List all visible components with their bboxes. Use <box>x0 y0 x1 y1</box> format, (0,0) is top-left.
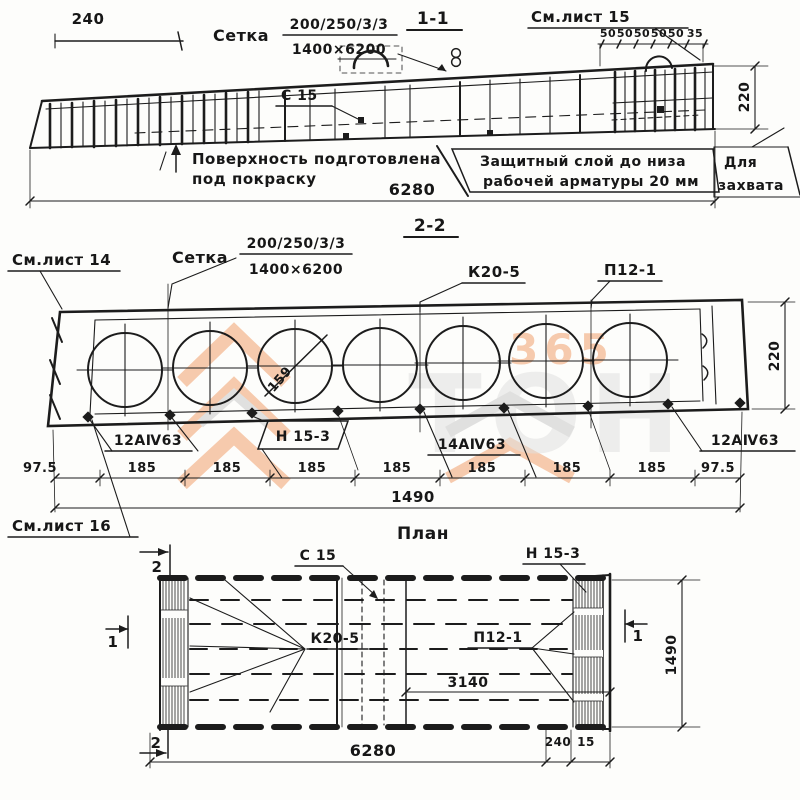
mesh-spec-bottom-2: 1400×6200 <box>249 262 343 278</box>
dim-185-6: 185 <box>553 461 582 476</box>
n15-3-text-plan: Н 15-3 <box>526 546 581 562</box>
section-marker-1-right: 1 <box>625 610 647 645</box>
dim-1490-plan-text: 1490 <box>664 635 680 676</box>
bar-left-text: 12АⅣ63 <box>114 433 182 449</box>
plan-outline <box>160 574 610 731</box>
dim-1490-s22: 1490 <box>51 488 744 512</box>
bar-mid-text: 14АⅣ63 <box>438 437 506 453</box>
dim-97-5-right: 97.5 <box>701 461 735 476</box>
grip-note: Для захвата <box>714 128 800 197</box>
dim-50-5: 50 <box>668 27 684 40</box>
dim-240-plan-text: 240 <box>545 735 572 749</box>
dim-220-s11: 220 <box>713 62 768 133</box>
k20-5-text-plan: К20-5 <box>311 631 360 647</box>
dim-6280-plan-text: 6280 <box>350 741 397 760</box>
dim-240-top: 240 <box>72 10 105 28</box>
dim-6280-s11-text: 6280 <box>389 180 436 199</box>
dims-50-row: 50 50 50 50 50 35 <box>598 27 708 66</box>
mesh-spec-top-1: 200/250/3/3 <box>290 17 389 33</box>
dim-97-5-left: 97.5 <box>23 461 57 476</box>
cover-note: Защитный слой до низа рабочей арматуры 2… <box>437 146 719 196</box>
dim-35: 35 <box>687 27 703 40</box>
dim-185-2: 185 <box>213 461 242 476</box>
dim-bottom-row: 240 15 6280 <box>146 730 614 768</box>
watermark: 365 ТОН <box>182 325 688 484</box>
hatch-strip-left <box>161 578 188 727</box>
dim-1490-s22-text: 1490 <box>391 488 435 506</box>
dim-15-plan-text: 15 <box>577 735 595 749</box>
bar-label-right: 12АⅣ63 <box>672 407 795 451</box>
section-marker-2-bottom: 2 <box>140 727 168 758</box>
dim-50-3: 50 <box>634 27 650 40</box>
see-sheet-16-text: См.лист 16 <box>12 517 111 535</box>
marker-1-right-text: 1 <box>633 627 644 645</box>
cover-note-line1: Защитный слой до низа <box>480 154 686 170</box>
dim-1490-plan: 1490 <box>612 576 700 731</box>
blueprint-page: 365 ТОН 1-1 См.лист 15 240 Сетка 200/250… <box>0 0 800 800</box>
mesh-spec-top-2: 200/250/3/3 <box>247 236 346 252</box>
dim-50-1: 50 <box>600 27 616 40</box>
grip-line1: Для <box>724 155 757 171</box>
section-1-1: 1-1 См.лист 15 240 Сетка 200/250/3/3 140… <box>26 8 800 208</box>
cover-note-line2: рабочей арматуры 20 мм <box>483 174 699 190</box>
c15-text-plan: С 15 <box>300 548 337 564</box>
lifting-hook-right <box>646 56 672 71</box>
c15-text-s11: С 15 <box>281 88 318 104</box>
see-sheet-15-label: См.лист 15 <box>531 8 630 26</box>
slab-longitudinal-section <box>30 46 715 148</box>
surface-note-line1: Поверхность подготовлена <box>192 150 441 168</box>
k20-5-label-plan: К20-5 <box>190 580 368 712</box>
section-1-1-title: 1-1 <box>417 9 449 29</box>
n15-3-label-plan: Н 15-3 <box>523 546 586 592</box>
hatch-strip-right <box>573 578 603 727</box>
dim-185-3: 185 <box>298 461 327 476</box>
mesh-word-1: Сетка <box>213 26 269 45</box>
plan-title: План <box>397 524 449 544</box>
dim-185-7: 185 <box>638 461 667 476</box>
drawing-canvas: 365 ТОН 1-1 См.лист 15 240 Сетка 200/250… <box>0 0 800 800</box>
plan-view: План С 15 Н 15-3 <box>106 524 700 768</box>
p12-1-text-s22: П12-1 <box>604 261 657 279</box>
surface-note-line2: под покраску <box>192 170 317 188</box>
dim-185-5: 185 <box>468 461 497 476</box>
section-marker-2-top: 2 <box>140 545 170 576</box>
n15-3-text-s22: Н 15-3 <box>276 429 331 445</box>
bar-right-text: 12АⅣ63 <box>711 433 779 449</box>
marker-2-bottom-text: 2 <box>151 734 162 752</box>
marker-1-left-text: 1 <box>108 633 119 651</box>
dim-3140-text: 3140 <box>448 675 489 691</box>
marker-2-top-text: 2 <box>152 558 163 576</box>
see-sheet-14-label: См.лист 14 <box>12 251 111 269</box>
plan-dashed-bars <box>190 600 572 700</box>
dim-185-1: 185 <box>128 461 157 476</box>
dim-220-s22-text: 220 <box>767 341 783 372</box>
section-2-2-title: 2-2 <box>414 216 446 236</box>
dim-220-s11-text: 220 <box>737 82 753 113</box>
rebar-right-zone <box>612 68 712 132</box>
section-marker-1-left: 1 <box>106 616 128 651</box>
dim-50-4: 50 <box>651 27 667 40</box>
dim-185-4: 185 <box>383 461 412 476</box>
p12-1-text-plan: П12-1 <box>473 630 522 646</box>
dim-50-2: 50 <box>617 27 633 40</box>
dim-220-s22: 220 <box>748 298 795 413</box>
grip-line2: захвата <box>718 178 784 194</box>
hook-symbol <box>452 49 461 67</box>
mesh-label-2: Сетка 200/250/3/3 1400×6200 <box>168 236 352 308</box>
k20-5-text-s22: К20-5 <box>468 263 520 281</box>
